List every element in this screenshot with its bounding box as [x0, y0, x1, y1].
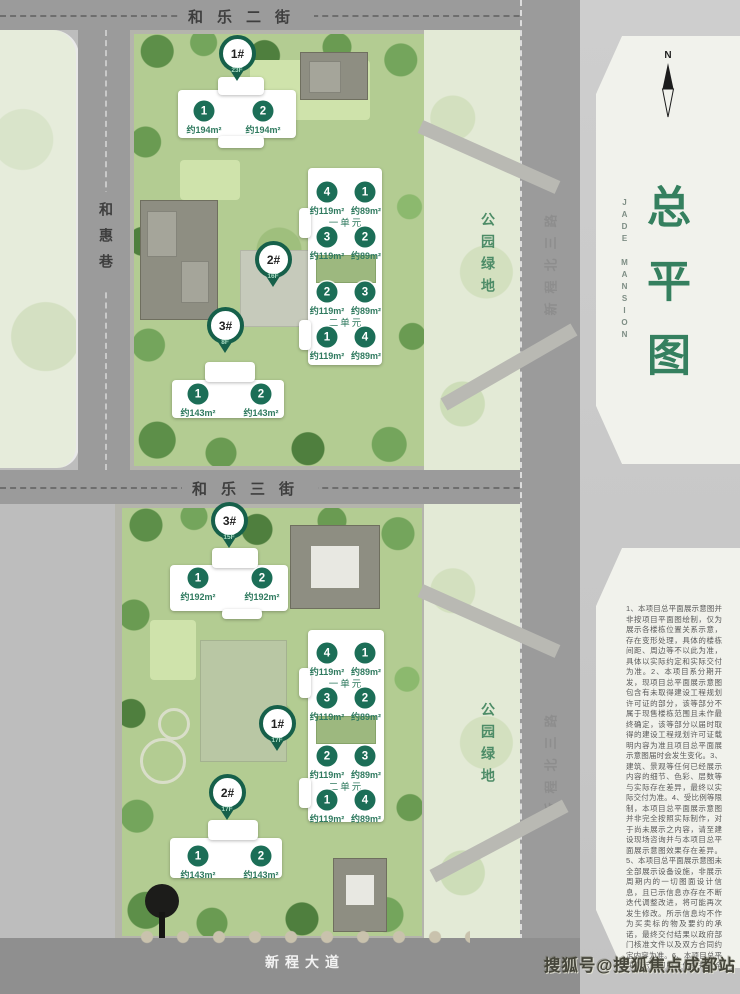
tree-trunk — [159, 912, 165, 938]
park-label-bottom: 公园绿地 — [478, 702, 498, 790]
adjacent-green-field — [0, 30, 79, 468]
unit-badge: 3 — [317, 227, 338, 248]
gray-building — [333, 858, 387, 932]
unit-badge: 2 — [251, 846, 272, 867]
unit-area: 约119m² — [310, 349, 345, 362]
sidewalk-dots — [140, 930, 470, 945]
park-strip-top — [424, 30, 520, 470]
page-title: 总平图 — [642, 184, 686, 406]
unit-badge: 3 — [355, 746, 376, 767]
gray-building-roof — [309, 61, 341, 93]
unit-badge: 2 — [355, 227, 376, 248]
street-label-bottom: 新程大道 — [255, 952, 355, 972]
gray-building-roof — [147, 211, 177, 257]
pin-floors: 15F — [211, 534, 247, 541]
street-label-left: 和惠巷 — [96, 192, 116, 290]
unit-area: 约89m² — [351, 710, 381, 723]
lawn — [180, 160, 240, 200]
unit-section-label: 一单元 — [329, 676, 364, 690]
unit-area: 约143m² — [243, 868, 278, 881]
building-footprint — [208, 820, 258, 840]
street-label-middle: 和乐三街 — [182, 478, 318, 499]
building-footprint — [299, 778, 311, 808]
gray-building — [140, 200, 218, 320]
unit-badge: 1 — [317, 790, 338, 811]
unit-badge: 1 — [194, 101, 215, 122]
unit-area: 约143m² — [180, 406, 215, 419]
building-footprint — [205, 362, 255, 382]
building-pin-1b: 1# 17F — [259, 705, 295, 751]
pin-floors: 17F — [209, 806, 245, 813]
unit-area: 约89m² — [351, 249, 381, 262]
unit-badge: 1 — [317, 327, 338, 348]
pin-floors: 17F — [259, 737, 295, 744]
right-panel: N 总平图 JADE MANSION 1、本项目总平面展示意图并非按项目平面图绘… — [580, 0, 740, 994]
building-pin-3: 3# 8F — [207, 307, 243, 353]
pin-floors: 23F — [219, 67, 255, 74]
unit-badge: 2 — [253, 101, 274, 122]
unit-badge: 2 — [252, 568, 273, 589]
unit-section-label: 二单元 — [329, 315, 364, 329]
disclaimer-card: 1、本项目总平面展示意图并非按项目平面图绘制，仅为展示各楼栋位置关系示意，存在变… — [596, 548, 740, 968]
building-pin-1: 1# 23F — [219, 35, 255, 81]
site-plan-poster: 和乐二街 和惠巷 和乐三街 新程北三路 新程北三路 新程大道 公园绿地 1 2 … — [0, 0, 740, 994]
unit-area: 约119m² — [310, 710, 345, 723]
building-pin-2: 2# 16F — [255, 241, 291, 287]
unit-area: 约89m² — [351, 812, 381, 825]
gray-courtyard-building — [290, 525, 380, 609]
page-subtitle: JADE MANSION — [620, 198, 629, 342]
unit-badge: 1 — [188, 384, 209, 405]
unit-badge: 4 — [355, 790, 376, 811]
building-footprint — [218, 136, 264, 148]
unit-badge: 3 — [317, 688, 338, 709]
gray-building — [300, 52, 368, 100]
playground-ring — [140, 738, 186, 784]
watermark: 搜狐号@搜狐焦点成都站 — [544, 952, 736, 976]
unit-badge: 2 — [317, 746, 338, 767]
unit-area: 约192m² — [180, 590, 215, 603]
unit-badge: 1 — [188, 568, 209, 589]
unit-badge: 2 — [355, 688, 376, 709]
unit-badge: 4 — [355, 327, 376, 348]
gray-building-roof — [181, 261, 209, 303]
title-card: N 总平图 JADE MANSION — [596, 36, 740, 464]
north-arrow-label: N — [664, 50, 671, 61]
unit-badge: 2 — [251, 384, 272, 405]
building-pin-3b: 3# 15F — [211, 502, 247, 548]
park-strip-bottom — [424, 504, 520, 938]
unit-area: 约119m² — [310, 812, 345, 825]
unit-area: 约143m² — [180, 868, 215, 881]
unit-section-label: 一单元 — [329, 215, 364, 229]
building-footprint — [299, 320, 311, 350]
lawn — [150, 620, 196, 680]
park-label-top: 公园绿地 — [478, 212, 498, 300]
unit-badge: 1 — [188, 846, 209, 867]
unit-area: 约119m² — [310, 249, 345, 262]
pin-floors: 8F — [207, 339, 243, 346]
playground-ring — [158, 708, 190, 740]
street-label-right-top: 新程北三路 — [541, 205, 560, 315]
building-footprint — [212, 548, 258, 568]
unit-area: 约192m² — [244, 590, 279, 603]
unit-area: 约89m² — [351, 349, 381, 362]
north-arrow-icon — [660, 62, 676, 118]
street-label-top: 和乐二街 — [178, 6, 314, 27]
disclaimer-text: 1、本项目总平面展示意图并非按项目平面图绘制，仅为展示各楼栋位置关系示意，存在变… — [626, 604, 722, 994]
street-label-right-bottom: 新程北三路 — [541, 705, 560, 815]
building-pin-2b: 2# 17F — [209, 774, 245, 820]
pin-floors: 16F — [255, 273, 291, 280]
building-footprint — [222, 609, 262, 619]
unit-badge: 4 — [317, 643, 338, 664]
gray-building-court — [346, 875, 374, 905]
street-label-right-top-wrap: 新程北三路 — [520, 170, 580, 350]
gray-building-court — [311, 546, 359, 588]
unit-badge: 2 — [317, 282, 338, 303]
unit-area: 约194m² — [186, 123, 221, 136]
unit-badge: 3 — [355, 282, 376, 303]
unit-area: 约143m² — [243, 406, 278, 419]
unit-area: 约194m² — [245, 123, 280, 136]
unit-badge: 1 — [355, 182, 376, 203]
unit-badge: 1 — [355, 643, 376, 664]
unit-badge: 4 — [317, 182, 338, 203]
